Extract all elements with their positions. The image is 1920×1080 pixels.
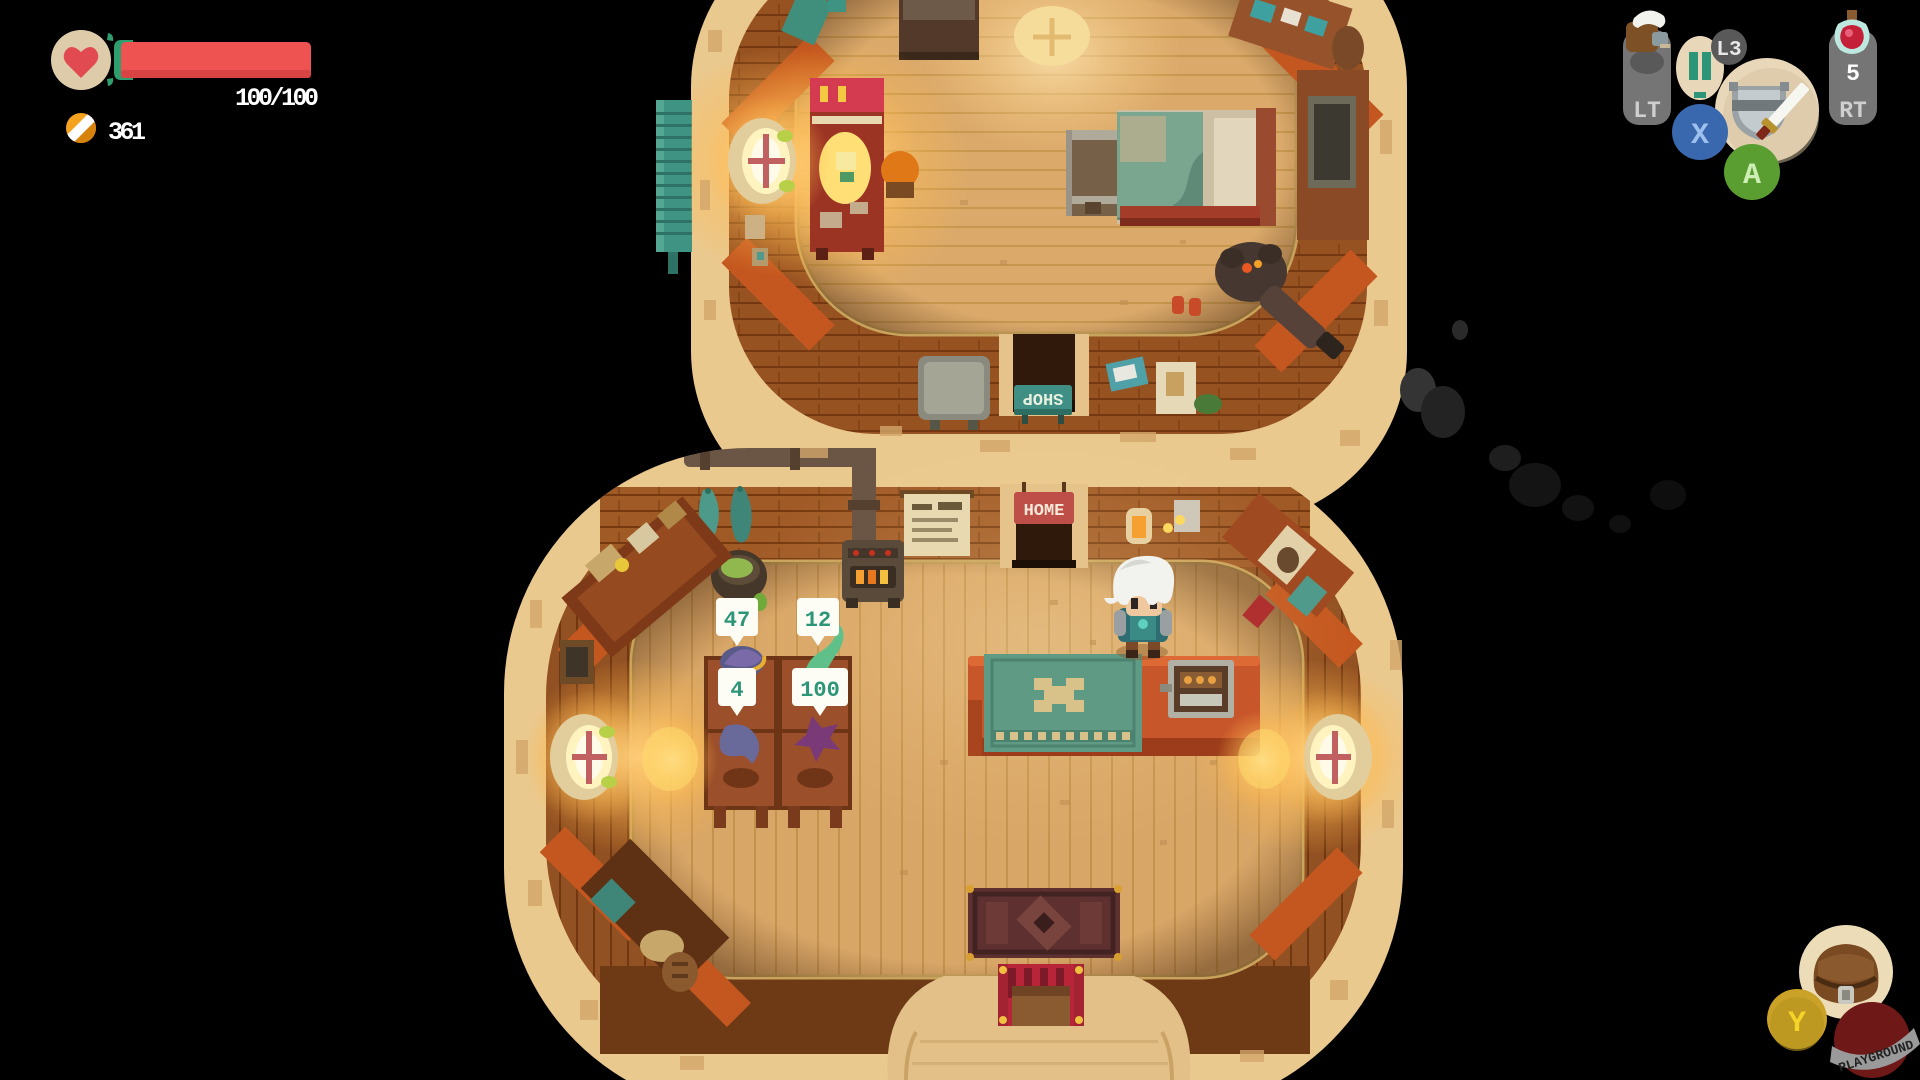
svg-text:361: 361 (108, 118, 145, 147)
svg-text:L3: L3 (1716, 39, 1741, 62)
svg-text:LT: LT (1633, 98, 1661, 124)
svg-text:100/100: 100/100 (235, 84, 318, 113)
svg-text:5: 5 (1846, 61, 1860, 87)
svg-text:SHOP: SHOP (1023, 388, 1064, 407)
svg-text:12: 12 (805, 608, 831, 633)
svg-text:100: 100 (800, 678, 840, 703)
svg-text:Y: Y (1788, 1007, 1806, 1041)
svg-text:A: A (1743, 159, 1761, 193)
svg-text:RT: RT (1839, 98, 1867, 124)
svg-text:47: 47 (724, 608, 750, 633)
svg-text:HOME: HOME (1024, 502, 1065, 521)
svg-text:4: 4 (730, 678, 743, 703)
svg-text:X: X (1691, 119, 1709, 153)
